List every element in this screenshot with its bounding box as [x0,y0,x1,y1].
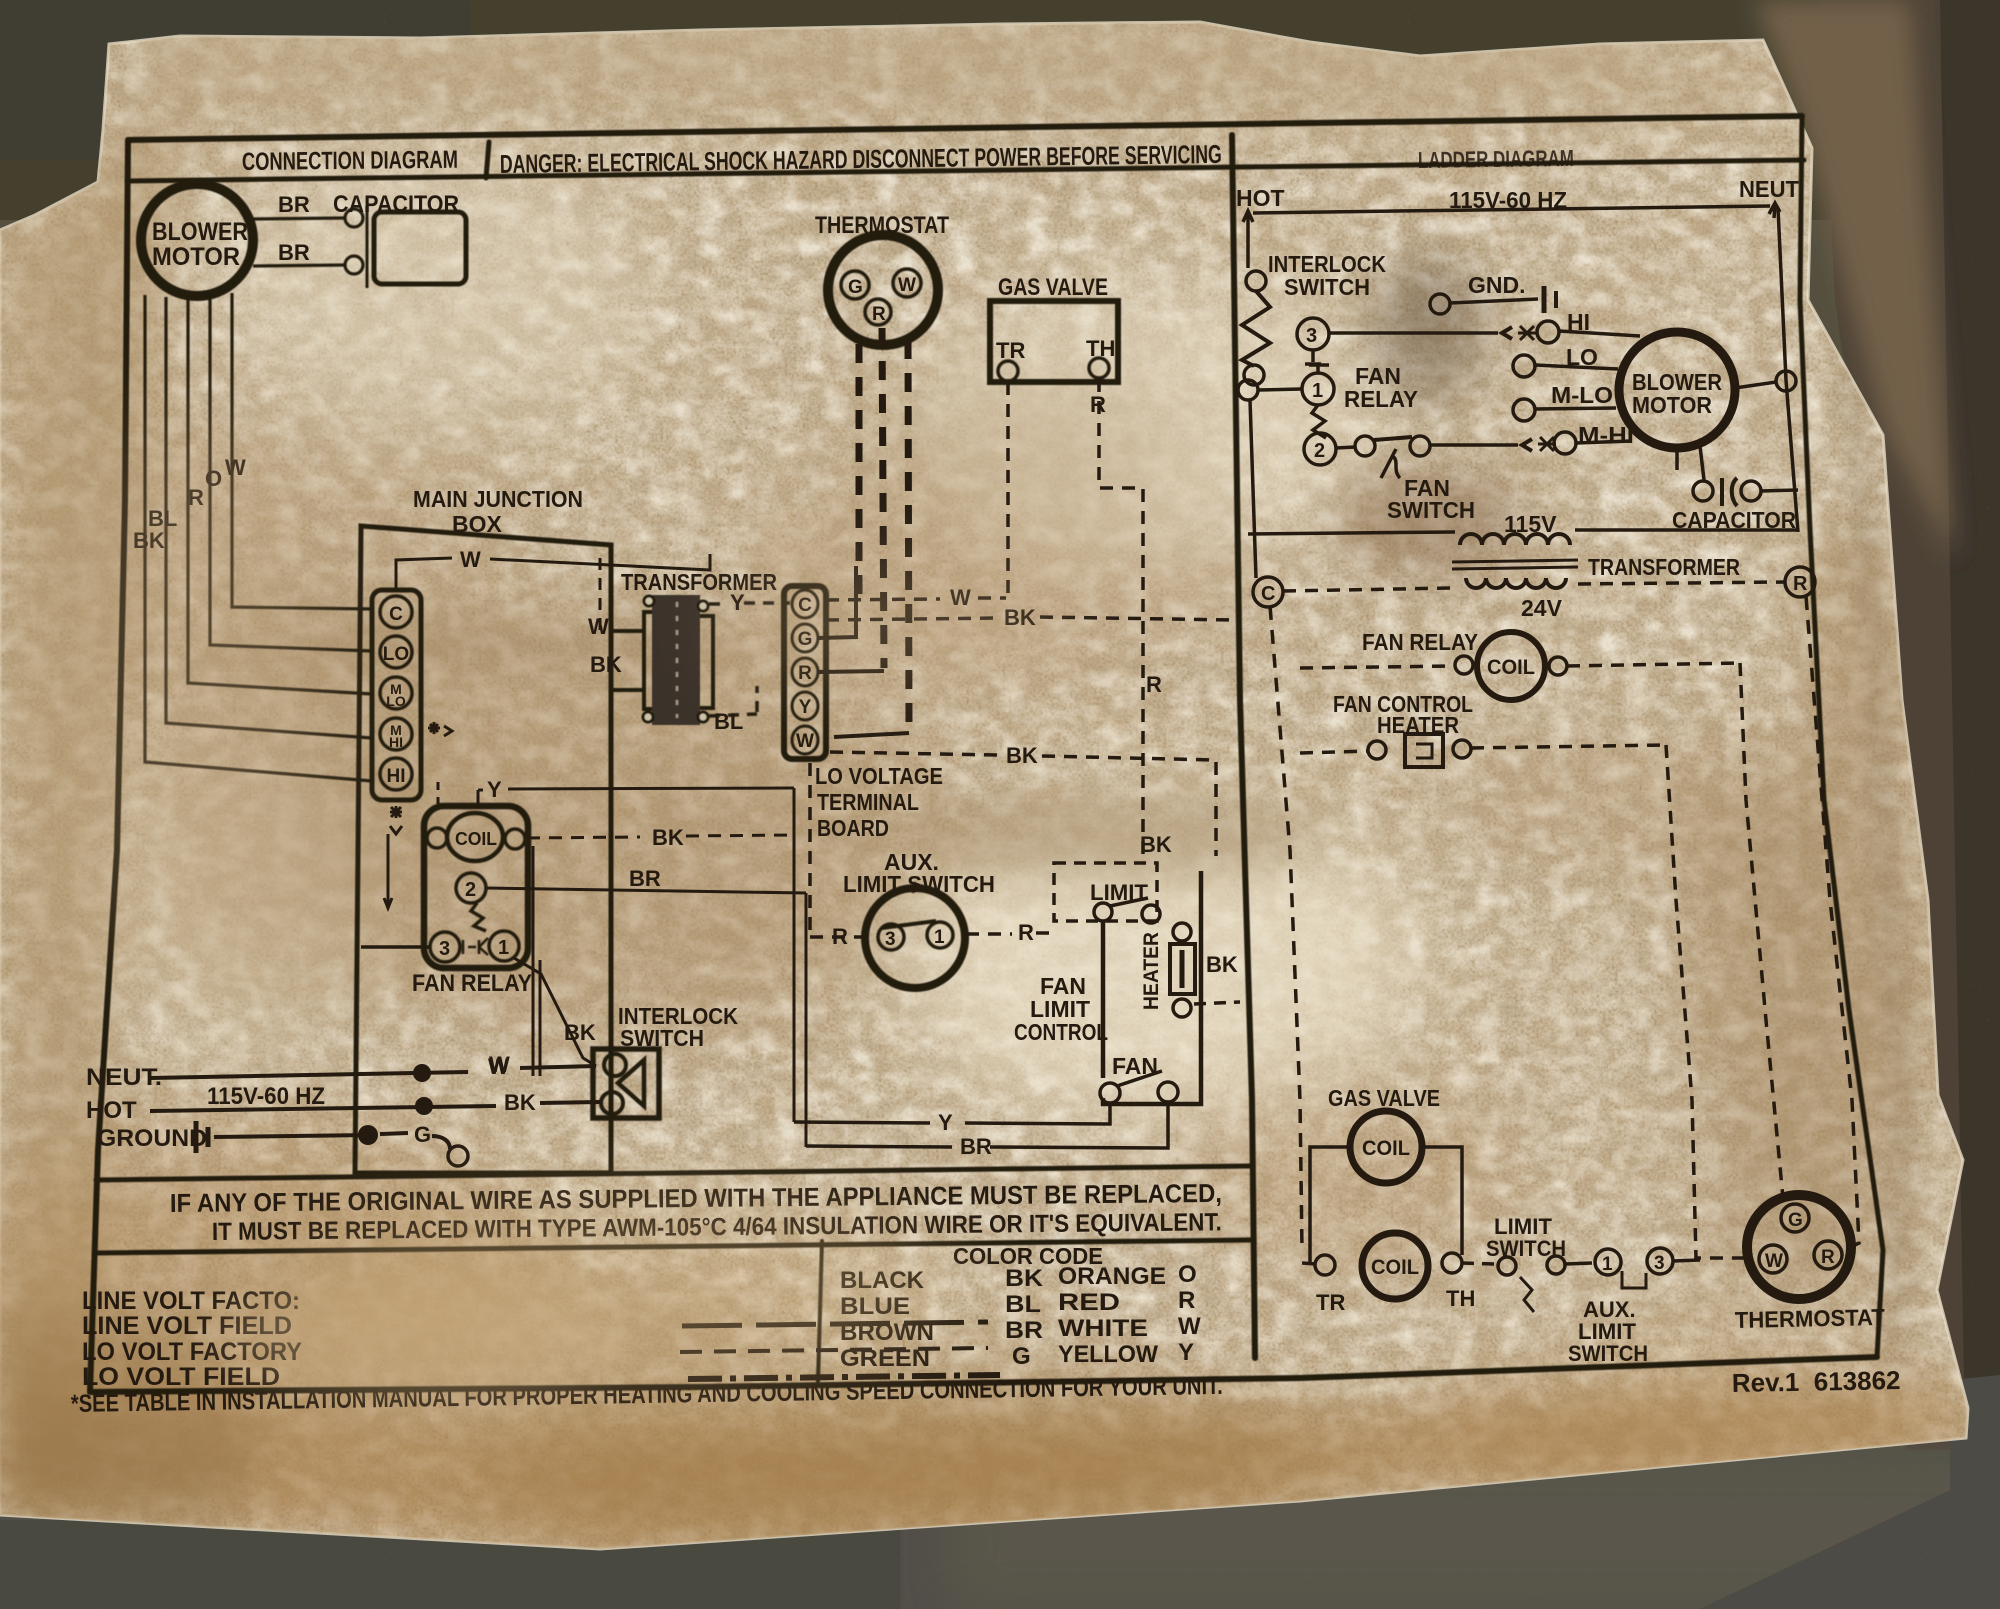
svg-text:R: R [1178,1287,1195,1314]
svg-text:R: R [1821,1247,1835,1268]
svg-text:GND.: GND. [1468,272,1526,298]
svg-text:LIMIT SWITCH: LIMIT SWITCH [843,871,995,897]
svg-text:BK: BK [590,652,622,677]
svg-text:W: W [460,547,481,572]
svg-text:BOARD: BOARD [817,815,889,841]
svg-text:MAIN JUNCTION: MAIN JUNCTION [413,486,583,512]
svg-text:R: R [1018,920,1034,945]
svg-text:Y: Y [1178,1339,1194,1366]
svg-text:BK: BK [1005,1265,1044,1292]
svg-text:W: W [796,731,814,752]
svg-text:3: 3 [439,938,450,960]
svg-text:115V-60 HZ: 115V-60 HZ [207,1083,325,1110]
svg-text:TH: TH [1086,336,1115,361]
svg-text:C: C [1261,583,1275,605]
svg-text:HOT: HOT [1236,185,1285,211]
svg-text:BL: BL [714,709,743,734]
svg-text:3: 3 [1306,325,1317,347]
svg-text:R: R [1146,672,1162,697]
svg-text:BK: BK [652,825,684,850]
svg-text:BK: BK [1206,952,1238,977]
svg-text:NEUT.: NEUT. [86,1064,162,1091]
svg-text:CONNECTION DIAGRAM: CONNECTION DIAGRAM [242,146,458,176]
svg-text:BLOWER: BLOWER [152,218,248,246]
svg-text:BK: BK [1140,832,1172,857]
svg-text:NEUT: NEUT [1739,176,1799,202]
svg-text:CAPACITOR: CAPACITOR [333,191,459,218]
svg-text:115V: 115V [1504,511,1557,537]
svg-text:W: W [898,275,916,296]
svg-text:C: C [389,604,403,625]
svg-text:BOX: BOX [452,511,503,537]
svg-text:BR: BR [278,240,310,265]
svg-text:BR: BR [1005,1317,1043,1344]
svg-text:G: G [848,277,863,298]
svg-text:GAS VALVE: GAS VALVE [1328,1085,1440,1111]
svg-text:MOTOR: MOTOR [1632,392,1712,418]
svg-text:Y: Y [799,697,812,718]
svg-text:M-HI: M-HI [1578,422,1634,448]
svg-text:LO VOLTAGE: LO VOLTAGE [815,763,943,789]
svg-text:1: 1 [1312,380,1323,402]
svg-text:R: R [1793,573,1808,595]
svg-text:YELLOW: YELLOW [1058,1341,1158,1368]
svg-text:1: 1 [934,927,945,948]
svg-text:THERMOSTAT: THERMOSTAT [1735,1304,1886,1333]
svg-text:W: W [1765,1251,1783,1272]
svg-text:3: 3 [885,929,896,950]
svg-text:2: 2 [1314,440,1325,462]
svg-text:TERMINAL: TERMINAL [817,789,919,815]
svg-text:LO: LO [1566,344,1598,370]
svg-text:Y: Y [487,777,502,802]
svg-text:CAPACITOR: CAPACITOR [1672,507,1796,533]
svg-text:HEATER: HEATER [1377,712,1459,738]
svg-text:G: G [414,1122,431,1147]
svg-text:BL: BL [1005,1291,1041,1318]
svg-text:M-LO: M-LO [1551,382,1613,408]
svg-text:24V: 24V [1521,595,1563,621]
svg-text:Y: Y [938,1110,953,1135]
svg-text:SWITCH: SWITCH [1568,1341,1648,1366]
svg-text:CONTROL: CONTROL [1014,1019,1108,1045]
svg-text:GAS VALVE: GAS VALVE [998,274,1108,301]
svg-text:LO: LO [383,644,409,665]
svg-text:115V-60 HZ: 115V-60 HZ [1449,187,1567,213]
svg-text:HI: HI [389,734,403,750]
svg-text:RELAY: RELAY [1344,386,1418,412]
svg-text:BR: BR [278,192,310,217]
svg-text:O: O [1178,1261,1197,1288]
svg-text:BR: BR [629,866,661,891]
svg-text:BK: BK [564,1020,596,1045]
svg-text:R: R [872,304,886,325]
svg-text:W: W [1178,1313,1201,1340]
svg-text:TH: TH [1446,1286,1475,1311]
svg-text:TR: TR [1316,1290,1345,1315]
svg-text:COIL: COIL [1371,1256,1419,1279]
svg-text:HOT: HOT [86,1097,137,1124]
svg-text:COIL: COIL [1487,656,1535,679]
svg-text:HI: HI [387,766,406,787]
svg-text:SWITCH: SWITCH [1284,274,1370,300]
svg-text:1: 1 [498,937,509,959]
svg-text:SWITCH: SWITCH [620,1025,704,1051]
svg-text:GROUND: GROUND [97,1125,207,1152]
svg-text:MOTOR: MOTOR [152,243,240,271]
svg-text:WHITE: WHITE [1058,1315,1148,1342]
svg-text:ORANGE: ORANGE [1058,1263,1166,1290]
svg-text:Rev.1 613862: Rev.1 613862 [1732,1365,1901,1398]
svg-text:HI: HI [1567,309,1590,335]
svg-text:G: G [1012,1343,1031,1370]
svg-text:RED: RED [1058,1289,1120,1316]
svg-text:THERMOSTAT: THERMOSTAT [815,212,949,239]
svg-text:W: W [488,1054,509,1079]
svg-text:BK: BK [1006,743,1038,768]
svg-text:G: G [1788,1210,1803,1231]
svg-text:BR: BR [960,1134,992,1159]
svg-text:R: R [832,924,848,949]
svg-text:3: 3 [1654,1253,1665,1274]
svg-text:FAN RELAY: FAN RELAY [412,970,532,997]
svg-text:TR: TR [996,338,1025,363]
svg-text:FAN RELAY: FAN RELAY [1362,629,1478,655]
svg-text:BK: BK [504,1090,536,1115]
svg-text:COIL: COIL [1362,1137,1410,1160]
svg-text:LO: LO [386,693,406,709]
svg-text:LADDER DIAGRAM: LADDER DIAGRAM [1418,145,1574,173]
svg-text:HEATER: HEATER [1140,932,1163,1010]
svg-text:TRANSFORMER: TRANSFORMER [1588,554,1740,580]
svg-text:COIL: COIL [455,829,497,849]
svg-text:SWITCH: SWITCH [1387,497,1475,523]
svg-text:W: W [588,614,609,639]
svg-text:2: 2 [465,879,476,901]
svg-text:1: 1 [1602,1254,1613,1275]
